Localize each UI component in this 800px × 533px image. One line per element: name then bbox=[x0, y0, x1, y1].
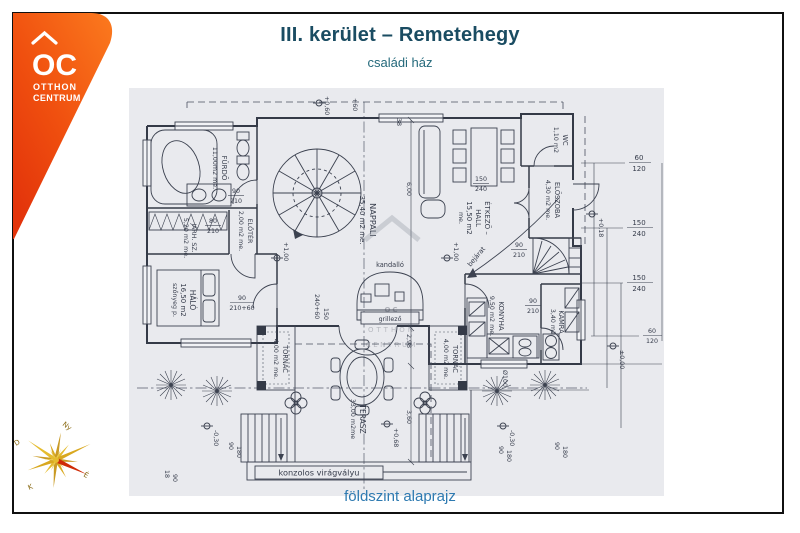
dim: 60 bbox=[635, 154, 644, 162]
brand-badge: OC OTTHON CENTRUM bbox=[13, 13, 123, 241]
room-area-wc: 1,10 m2 bbox=[552, 127, 559, 153]
level-m030-a: -0,30 bbox=[212, 430, 219, 446]
level-p068: +0,68 bbox=[392, 428, 399, 447]
watermark-line2: CENTRUM bbox=[366, 341, 418, 349]
level-p000: ±0,00 bbox=[618, 350, 625, 369]
level-p100-b: +1,00 bbox=[452, 242, 459, 261]
room-label-etkezo: ÉTKEZŐ – bbox=[483, 201, 492, 235]
dim: 240 bbox=[632, 285, 645, 293]
room-note-halo: szőnyeg p. bbox=[171, 283, 180, 317]
dim: 90 bbox=[515, 242, 523, 249]
room-label-furdo: FÜRDŐ bbox=[220, 156, 229, 181]
room-label-wc: WC bbox=[561, 134, 569, 146]
room-area-eloter: 2,00 m2 me. bbox=[237, 211, 244, 251]
page-subtitle: családi ház bbox=[0, 55, 800, 70]
room-area-furdo: 11,00m2 me. bbox=[211, 147, 218, 189]
dim: 80 bbox=[209, 218, 217, 225]
dim: 90 bbox=[171, 474, 178, 482]
level-p100-a: +1,00 bbox=[282, 242, 289, 261]
dim: 18 bbox=[163, 470, 170, 478]
room-area-konyha: 9,50 m2 me. bbox=[488, 296, 495, 336]
dim: 90 bbox=[497, 446, 504, 454]
flyer-page: OC OTTHON CENTRUM III. kerület – Remeteh… bbox=[0, 0, 800, 533]
dim: 3,60 bbox=[405, 410, 412, 424]
dim: 180 bbox=[561, 446, 568, 458]
logo-line1: OTTHON bbox=[33, 82, 77, 92]
room-label-tornac-right: TORNÁC bbox=[451, 344, 460, 373]
room-label-hall: HALL bbox=[474, 209, 482, 227]
dim: 210 bbox=[230, 198, 242, 205]
floor-plan: FÜRDŐ 11,00m2 me. ELŐTÉR 2,00 m2 me. JÁR… bbox=[129, 88, 664, 496]
dim: 210+60 bbox=[229, 305, 254, 312]
dim: 210 bbox=[207, 228, 219, 235]
fireplace-label: kandalló bbox=[376, 261, 404, 269]
room-area-tornac-left: 4,00 m2 me. bbox=[272, 339, 279, 379]
room-label-tornac-left: TORNÁC bbox=[281, 344, 290, 373]
watermark-oc: OC bbox=[384, 306, 399, 314]
room-label-konyha: KONYHA bbox=[497, 301, 505, 330]
dim: 210 bbox=[527, 308, 539, 315]
compass-west: Ny bbox=[61, 420, 73, 432]
level-p018: +0,18 bbox=[597, 218, 604, 237]
room-label-eloszoba: ELŐSZOBA bbox=[553, 182, 562, 218]
room-area-halo: 16,50 m2 bbox=[179, 283, 187, 317]
dim: 150 bbox=[322, 308, 329, 320]
room-label-halo: HÁLÓ bbox=[188, 290, 197, 311]
dim: Ø100 bbox=[501, 370, 509, 387]
room-label-terasz: TERASZ bbox=[358, 403, 367, 433]
room-label-kamra: KAMRA bbox=[557, 310, 565, 334]
dim: 120 bbox=[632, 165, 645, 173]
room-area-jarhsz: 5,20 m2 me. bbox=[182, 218, 189, 258]
room-area-tornac-right: 4,00 m2 me. bbox=[442, 339, 449, 379]
room-area-terasz: 33,00 m2me bbox=[349, 399, 356, 439]
room-area-eloszoba: 4,30 m2 me. bbox=[544, 180, 551, 220]
page-title: III. kerület – Remetehegy bbox=[0, 24, 800, 47]
dim: 38 bbox=[395, 118, 402, 126]
room-area-hall: 15,50 m2 bbox=[465, 201, 473, 235]
room-label-eloter: ELŐTÉR bbox=[246, 219, 255, 244]
dim: 6,00 bbox=[405, 182, 412, 196]
dim: 240 bbox=[475, 186, 487, 193]
dim: 150 bbox=[475, 176, 487, 183]
logo-line2: CENTRUM bbox=[33, 93, 81, 103]
dim: 240 bbox=[632, 230, 645, 238]
watermark-line1: OTTHON bbox=[368, 326, 416, 334]
plan-caption: földszint alaprajz bbox=[0, 488, 800, 505]
dim: 180 bbox=[505, 450, 512, 462]
dim: 90 bbox=[529, 298, 537, 305]
room-area-kamra: 3,40 m2 bbox=[549, 309, 556, 335]
room-label-jarhsz: JÁRH. SZ. bbox=[190, 222, 199, 252]
dim: 240+60 bbox=[313, 294, 320, 319]
dim: 60 bbox=[648, 328, 656, 335]
compass-rays bbox=[27, 432, 91, 488]
dim: 120 bbox=[646, 338, 658, 345]
grill-label: grillező bbox=[379, 314, 402, 323]
level-m030-b: -0,30 bbox=[508, 430, 515, 446]
dim: 90 bbox=[553, 442, 560, 450]
dim: 90 bbox=[238, 295, 246, 302]
dim: 210 bbox=[513, 252, 525, 259]
dim-p60: +60 bbox=[351, 98, 358, 111]
dim: 90 bbox=[227, 442, 234, 450]
flower-trough-label: konzolos virágvályu bbox=[279, 468, 360, 478]
dim: 180 bbox=[235, 446, 242, 458]
dim: 150 bbox=[632, 274, 645, 282]
room-note-hall: me. bbox=[457, 212, 464, 224]
dim: 150 bbox=[632, 219, 645, 227]
compass-north: É bbox=[82, 470, 90, 480]
compass-south: D bbox=[13, 438, 22, 448]
level-p060: +0,60 bbox=[323, 96, 330, 115]
dim: 90 bbox=[232, 188, 240, 195]
